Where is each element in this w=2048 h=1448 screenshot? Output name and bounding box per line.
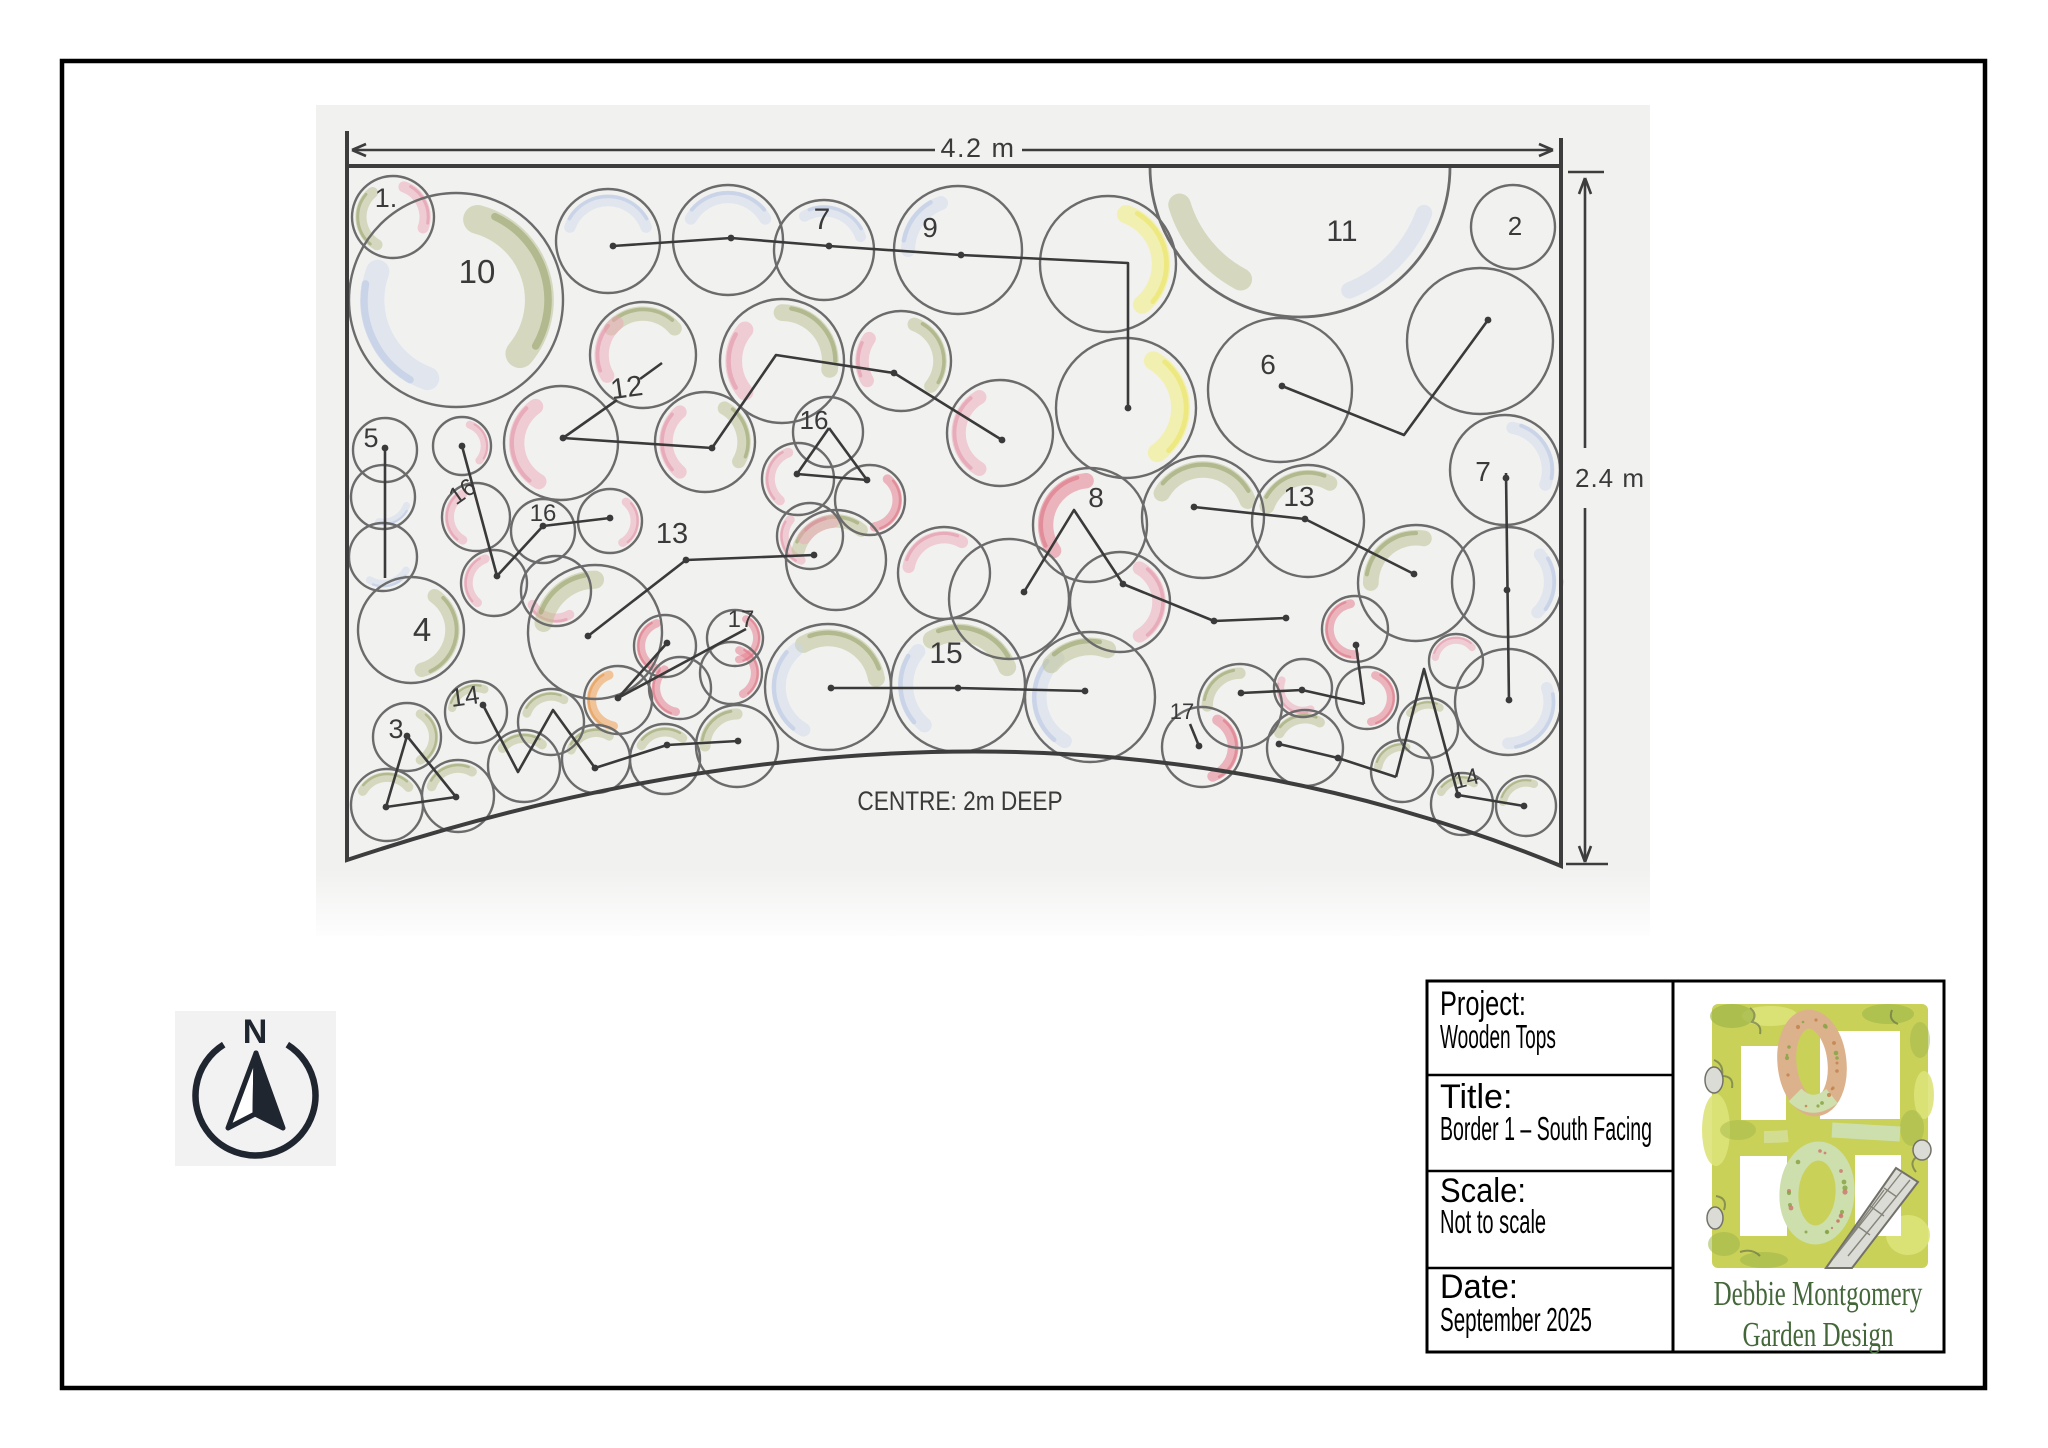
svg-text:3: 3	[388, 714, 403, 744]
svg-text:Garden Design: Garden Design	[1743, 1315, 1894, 1354]
svg-text:8: 8	[1088, 482, 1104, 513]
svg-text:4: 4	[413, 611, 431, 648]
svg-text:Not to scale: Not to scale	[1440, 1203, 1546, 1240]
svg-text:15: 15	[929, 637, 962, 670]
svg-text:14: 14	[448, 679, 481, 713]
svg-text:Project:: Project:	[1440, 986, 1526, 1023]
svg-text:6: 6	[1260, 349, 1276, 380]
svg-text:N: N	[243, 1013, 268, 1051]
svg-text:17: 17	[1170, 699, 1194, 724]
svg-text:13: 13	[656, 518, 688, 550]
svg-text:September 2025: September 2025	[1440, 1301, 1592, 1338]
svg-text:13: 13	[1283, 481, 1314, 512]
svg-text:17: 17	[728, 606, 755, 633]
svg-text:16: 16	[800, 405, 829, 435]
svg-text:Border 1 – South Facing: Border 1 – South Facing	[1440, 1110, 1652, 1148]
svg-text:10: 10	[459, 253, 496, 290]
svg-text:Debbie Montgomery: Debbie Montgomery	[1714, 1274, 1923, 1313]
svg-text:12: 12	[609, 370, 645, 406]
svg-text:1.: 1.	[375, 183, 398, 213]
svg-text:CENTRE: 2m DEEP: CENTRE: 2m DEEP	[857, 786, 1062, 816]
svg-text:2: 2	[1508, 211, 1522, 241]
svg-text:Wooden Tops: Wooden Tops	[1440, 1019, 1556, 1056]
svg-text:7: 7	[814, 203, 831, 236]
svg-text:16: 16	[530, 500, 557, 527]
svg-text:2.4 m: 2.4 m	[1575, 463, 1645, 493]
svg-text:7: 7	[1475, 456, 1491, 487]
svg-text:11: 11	[1326, 215, 1357, 248]
svg-text:4.2 m: 4.2 m	[940, 133, 1015, 163]
svg-text:5: 5	[363, 423, 378, 453]
svg-text:9: 9	[922, 212, 938, 243]
